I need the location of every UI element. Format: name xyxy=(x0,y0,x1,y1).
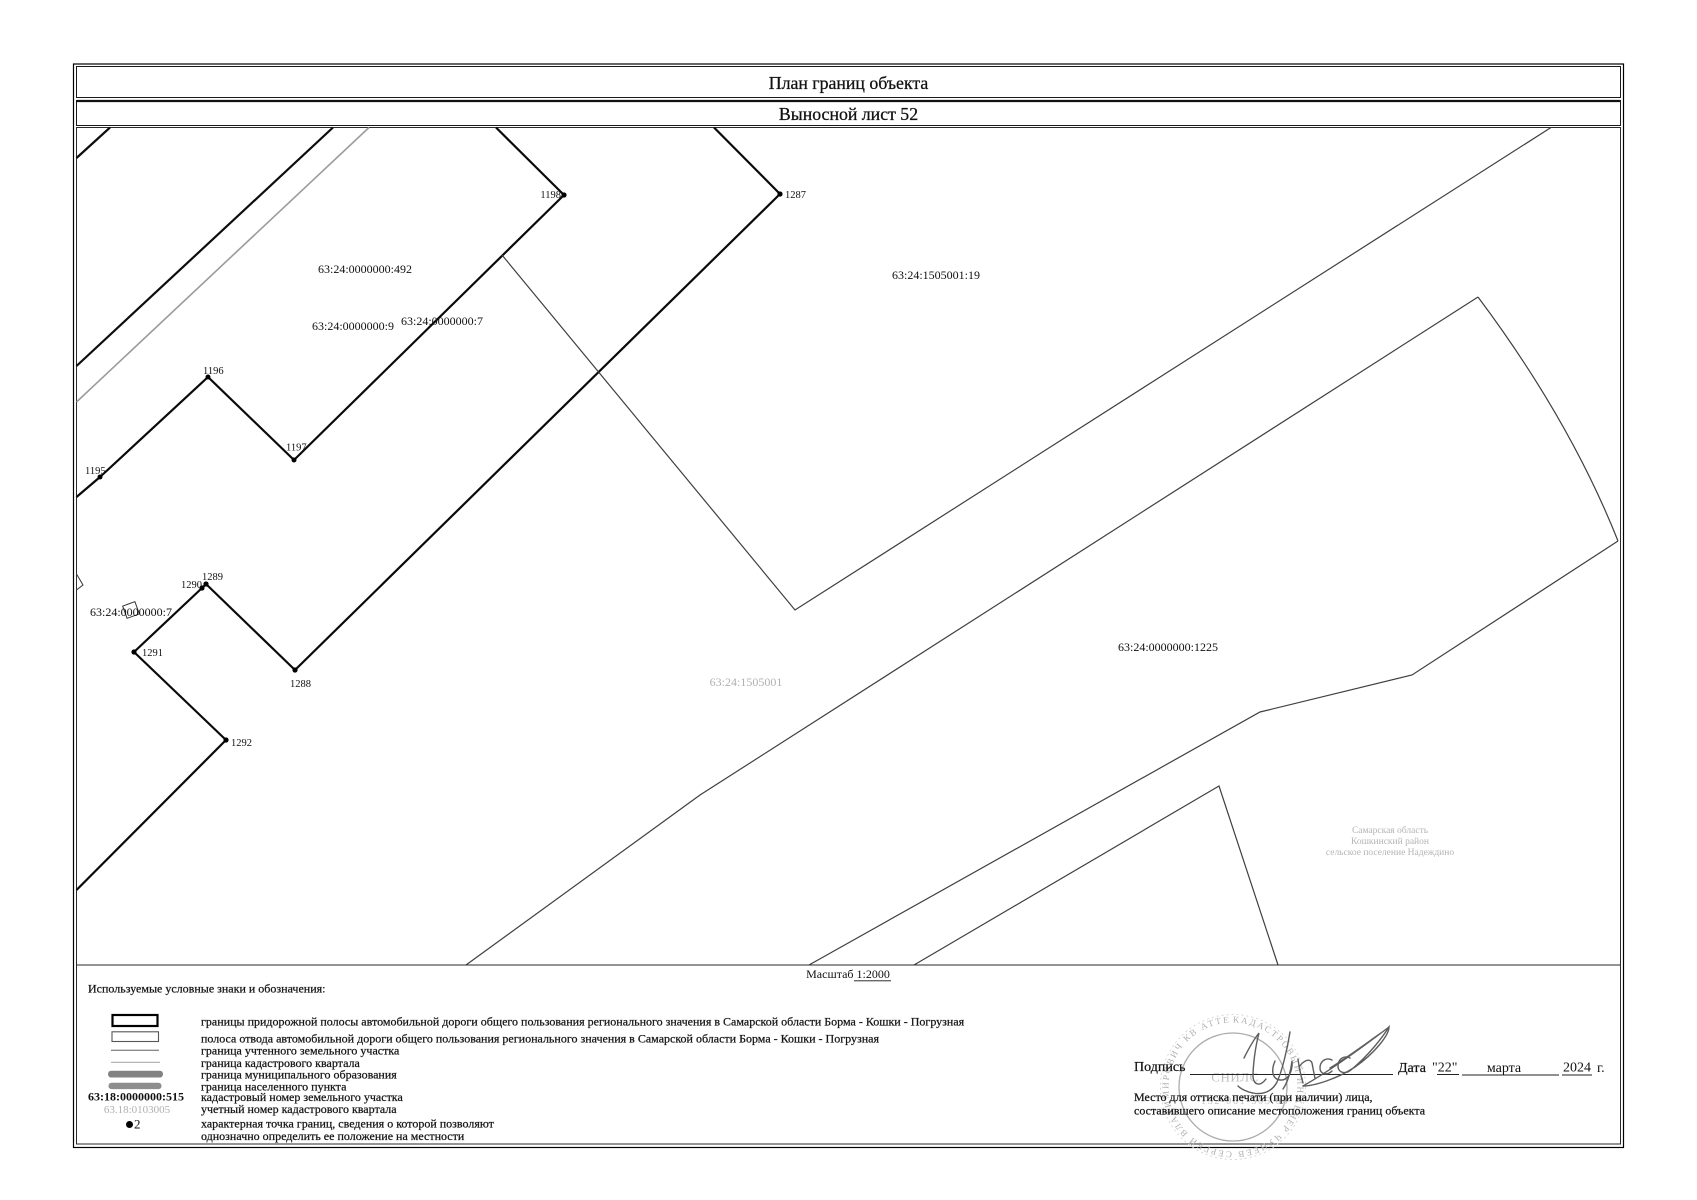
svg-text:Место для оттиска печати (при: Место для оттиска печати (при наличии) л… xyxy=(1134,1090,1373,1104)
svg-text:1289: 1289 xyxy=(202,572,223,583)
svg-text:Используемые условные знаки и: Используемые условные знаки и обозначени… xyxy=(88,982,325,996)
svg-text:марта: марта xyxy=(1487,1061,1522,1076)
svg-text:63:24:0000000:7: 63:24:0000000:7 xyxy=(401,314,483,328)
svg-text:Подпись: Подпись xyxy=(1134,1060,1185,1075)
svg-text:63:24:0000000:7: 63:24:0000000:7 xyxy=(90,605,172,619)
svg-text:границы придорожной полосы авт: границы придорожной полосы автомобильной… xyxy=(201,1015,965,1029)
svg-text:1197: 1197 xyxy=(286,443,307,454)
svg-text:"22": "22" xyxy=(1432,1061,1457,1076)
svg-text:63:24:0000000:9: 63:24:0000000:9 xyxy=(312,319,394,333)
svg-text:63:24:0000000:492: 63:24:0000000:492 xyxy=(318,262,412,276)
svg-text:1290: 1290 xyxy=(181,580,202,591)
svg-text:63:24:0000000:1225: 63:24:0000000:1225 xyxy=(1118,640,1218,654)
svg-text:1198: 1198 xyxy=(540,190,561,201)
svg-text:Дата: Дата xyxy=(1398,1061,1427,1076)
svg-text:Масштаб 1:2000: Масштаб 1:2000 xyxy=(806,967,890,981)
svg-text:63.18:0103005: 63.18:0103005 xyxy=(104,1104,171,1116)
svg-text:сельское поселение Надеждино: сельское поселение Надеждино xyxy=(1326,848,1454,858)
svg-text:Кошкинский район: Кошкинский район xyxy=(1351,836,1429,847)
svg-text:1288: 1288 xyxy=(290,679,311,690)
svg-text:63:24:1505001: 63:24:1505001 xyxy=(710,675,783,689)
svg-text:2024: 2024 xyxy=(1563,1061,1591,1076)
svg-text:г.: г. xyxy=(1597,1061,1605,1076)
svg-text:1291: 1291 xyxy=(142,648,163,659)
svg-text:СНИЛС: СНИЛС xyxy=(1211,1070,1258,1085)
svg-text:План границ объекта: План границ объекта xyxy=(769,73,929,93)
svg-text:учетный номер кадастрового ква: учетный номер кадастрового квартала xyxy=(201,1102,397,1116)
svg-text:2: 2 xyxy=(134,1117,141,1132)
svg-text:1292: 1292 xyxy=(231,738,252,749)
svg-text:1195: 1195 xyxy=(85,466,106,477)
svg-text:Самарская область: Самарская область xyxy=(1352,825,1429,836)
svg-text:1196: 1196 xyxy=(203,366,224,377)
svg-text:63:24:1505001:19: 63:24:1505001:19 xyxy=(892,268,980,282)
svg-text:составившего описание местопол: составившего описание местоположения гра… xyxy=(1134,1104,1426,1118)
svg-text:Выносной лист 52: Выносной лист 52 xyxy=(779,104,918,124)
svg-text:63:18:0000000:515: 63:18:0000000:515 xyxy=(88,1089,184,1103)
svg-text:1287: 1287 xyxy=(785,190,806,201)
svg-text:однозначно определить ее полож: однозначно определить ее положение на ме… xyxy=(201,1129,465,1143)
